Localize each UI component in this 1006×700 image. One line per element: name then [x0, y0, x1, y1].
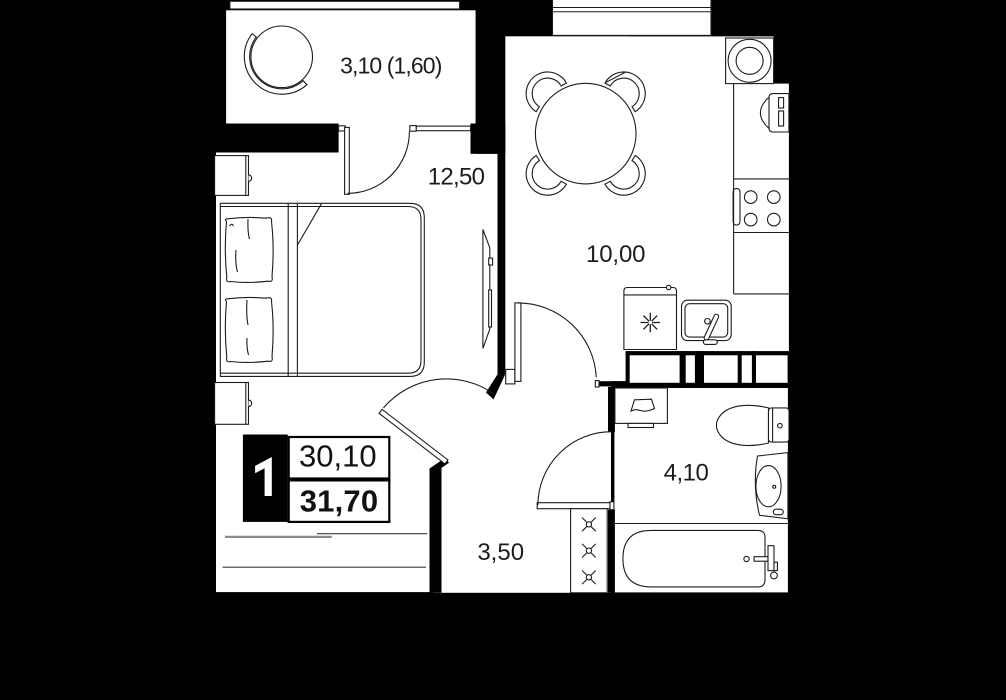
svg-text:3,10 (1,60): 3,10 (1,60): [340, 52, 442, 78]
svg-text:10,00: 10,00: [586, 241, 645, 268]
svg-text:12,50: 12,50: [428, 163, 485, 190]
svg-text:4,10: 4,10: [664, 460, 709, 487]
svg-text:30,10: 30,10: [299, 438, 377, 473]
svg-text:31,70: 31,70: [300, 484, 379, 519]
svg-text:3,50: 3,50: [477, 539, 524, 566]
